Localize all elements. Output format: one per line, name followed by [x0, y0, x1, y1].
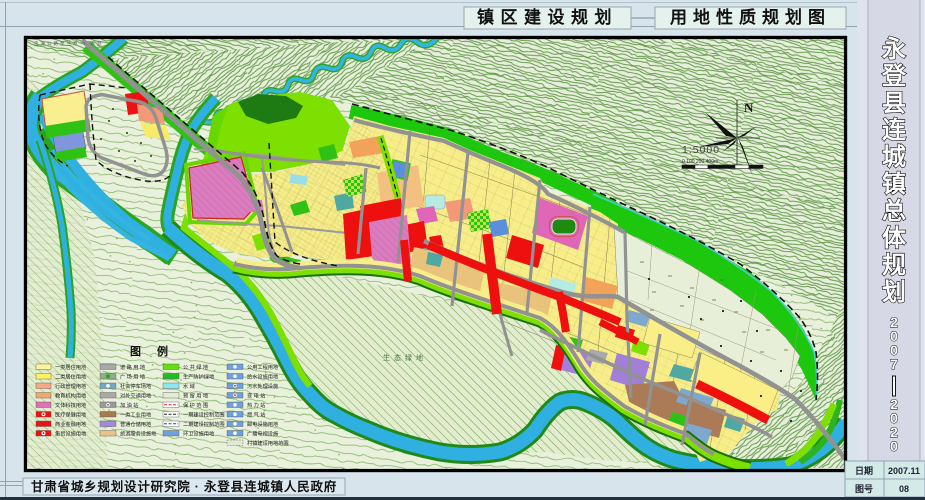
- svg-text:道 路 用 地: 道 路 用 地: [120, 363, 145, 371]
- svg-text:集贸设施用地: 集贸设施用地: [55, 430, 86, 438]
- svg-text:生态绿地: 生态绿地: [383, 353, 427, 362]
- svg-text:邮电设施用地: 邮电设施用地: [247, 420, 278, 428]
- svg-text:给水设施用地: 给水设施用地: [247, 373, 278, 381]
- svg-text:社会停车场地: 社会停车场地: [120, 382, 151, 390]
- svg-text:规: 规: [882, 252, 906, 279]
- svg-text:图号: 图号: [855, 484, 873, 494]
- svg-text:文体科技用地: 文体科技用地: [55, 401, 86, 409]
- svg-text:广播电视设施: 广播电视设施: [247, 430, 278, 438]
- svg-text:预 留 用 地: 预 留 用 地: [183, 392, 208, 400]
- svg-text:08: 08: [899, 484, 909, 494]
- svg-text:旅游服务设施地: 旅游服务设施地: [120, 430, 156, 438]
- svg-text:污水处理设施: 污水处理设施: [247, 382, 278, 390]
- svg-text:水 域: 水 域: [183, 382, 195, 390]
- svg-text:对外交通用地: 对外交通用地: [120, 392, 151, 400]
- svg-text:燃 气 站: 燃 气 站: [247, 411, 265, 419]
- svg-text:连: 连: [882, 116, 907, 144]
- svg-text:商业金融用地: 商业金融用地: [55, 420, 86, 428]
- svg-text:0: 0: [890, 438, 898, 454]
- svg-text:总: 总: [882, 197, 906, 225]
- svg-text:变 电 站: 变 电 站: [247, 392, 265, 400]
- svg-text:甘肃省城乡规划设计研究院 · 永登县连城镇人民政府: 甘肃省城乡规划设计研究院 · 永登县连城镇人民政府: [31, 479, 337, 494]
- svg-text:普通仓储用地: 普通仓储用地: [120, 420, 151, 428]
- svg-text:N: N: [744, 100, 754, 115]
- svg-text:1:5000: 1:5000: [682, 144, 720, 156]
- svg-text:体: 体: [882, 225, 907, 252]
- svg-text:医疗保健用地: 医疗保健用地: [55, 411, 86, 419]
- svg-text:2007.11: 2007.11: [888, 466, 920, 476]
- svg-text:生产防护绿地: 生产防护绿地: [183, 373, 214, 381]
- svg-text:连海公路至兰州 T 永登: 连海公路至兰州 T 永登: [34, 40, 104, 47]
- svg-text:二类居住用地: 二类居住用地: [55, 373, 86, 381]
- svg-text:镇区建设规划: 镇区建设规划: [477, 7, 618, 27]
- svg-text:村镇建设用地范围: 村镇建设用地范围: [247, 439, 289, 447]
- svg-text:永: 永: [882, 36, 906, 63]
- svg-text:一类居住用地: 一类居住用地: [55, 363, 86, 371]
- svg-text:公 共 绿 地: 公 共 绿 地: [183, 363, 208, 371]
- svg-text:二期建设控制范围: 二期建设控制范围: [183, 420, 225, 428]
- svg-text:0 100 200 400m: 0 100 200 400m: [682, 159, 718, 165]
- svg-text:行政管理用地: 行政管理用地: [55, 382, 86, 390]
- svg-text:一类工业用地: 一类工业用地: [120, 411, 151, 419]
- svg-text:环卫设施用地: 环卫设施用地: [183, 430, 214, 438]
- svg-text:公用工程用地: 公用工程用地: [247, 363, 278, 371]
- svg-text:热 力 站: 热 力 站: [247, 401, 265, 409]
- svg-text:用地性质规划图: 用地性质规划图: [670, 7, 831, 27]
- svg-text:教育机构用地: 教育机构用地: [55, 392, 86, 400]
- svg-text:保 护 范 围: 保 护 范 围: [183, 401, 208, 409]
- svg-text:镇: 镇: [882, 171, 906, 198]
- svg-text:一期建设控制范围: 一期建设控制范围: [183, 411, 225, 419]
- svg-text:城: 城: [882, 143, 906, 171]
- svg-text:加 油 站: 加 油 站: [120, 401, 138, 409]
- svg-text:县: 县: [882, 90, 906, 117]
- svg-text:广 场 用 地: 广 场 用 地: [120, 373, 145, 381]
- svg-text:图例: 图例: [130, 344, 184, 358]
- svg-text:日期: 日期: [855, 465, 873, 476]
- svg-text:7: 7: [890, 356, 898, 372]
- svg-text:登: 登: [881, 63, 907, 90]
- svg-text:划: 划: [882, 279, 906, 306]
